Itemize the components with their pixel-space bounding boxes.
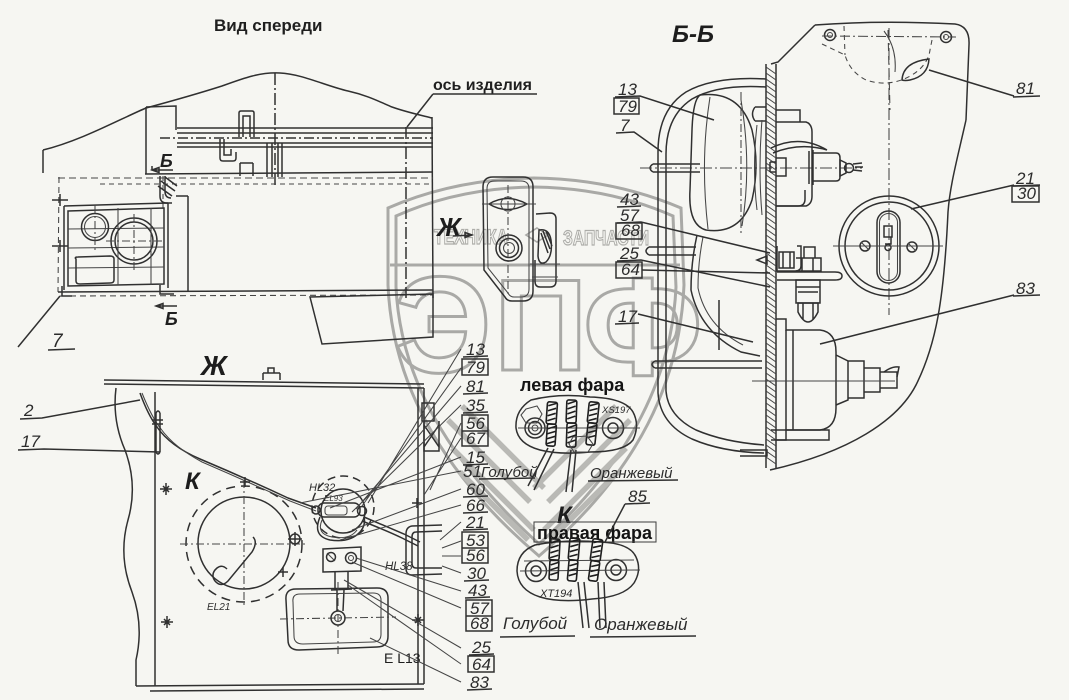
svg-text:64: 64 xyxy=(621,260,640,279)
svg-text:правая фара: правая фара xyxy=(537,523,653,543)
svg-text:Вид спереди: Вид спереди xyxy=(214,16,323,35)
svg-text:56: 56 xyxy=(466,546,485,565)
svg-text:2: 2 xyxy=(23,401,34,420)
svg-text:79: 79 xyxy=(618,97,637,116)
svg-text:левая фара: левая фара xyxy=(520,375,625,395)
svg-text:Ж: Ж xyxy=(435,212,463,242)
svg-text:EL21: EL21 xyxy=(207,602,230,613)
svg-text:XT194: XT194 xyxy=(539,588,572,600)
svg-text:Ж: Ж xyxy=(199,350,229,381)
svg-text:Б: Б xyxy=(165,309,178,329)
svg-text:XS197: XS197 xyxy=(601,405,631,416)
svg-text:E L13: E L13 xyxy=(384,650,421,666)
svg-text:79: 79 xyxy=(466,358,485,377)
svg-text:64: 64 xyxy=(472,655,491,674)
svg-text:51: 51 xyxy=(463,462,482,481)
svg-text:К: К xyxy=(185,468,202,495)
svg-text:ось изделия: ось изделия xyxy=(433,77,532,94)
svg-text:Б: Б xyxy=(160,151,173,171)
svg-text:Оранжевый: Оранжевый xyxy=(594,615,688,634)
svg-text:68: 68 xyxy=(621,221,640,240)
svg-text:Б-Б: Б-Б xyxy=(672,21,714,48)
svg-text:17: 17 xyxy=(21,432,40,451)
svg-text:30: 30 xyxy=(1017,184,1036,203)
svg-text:68: 68 xyxy=(470,614,489,633)
svg-text:81: 81 xyxy=(1016,79,1035,98)
svg-text:Голубой: Голубой xyxy=(503,614,568,633)
svg-text:67: 67 xyxy=(466,429,485,448)
